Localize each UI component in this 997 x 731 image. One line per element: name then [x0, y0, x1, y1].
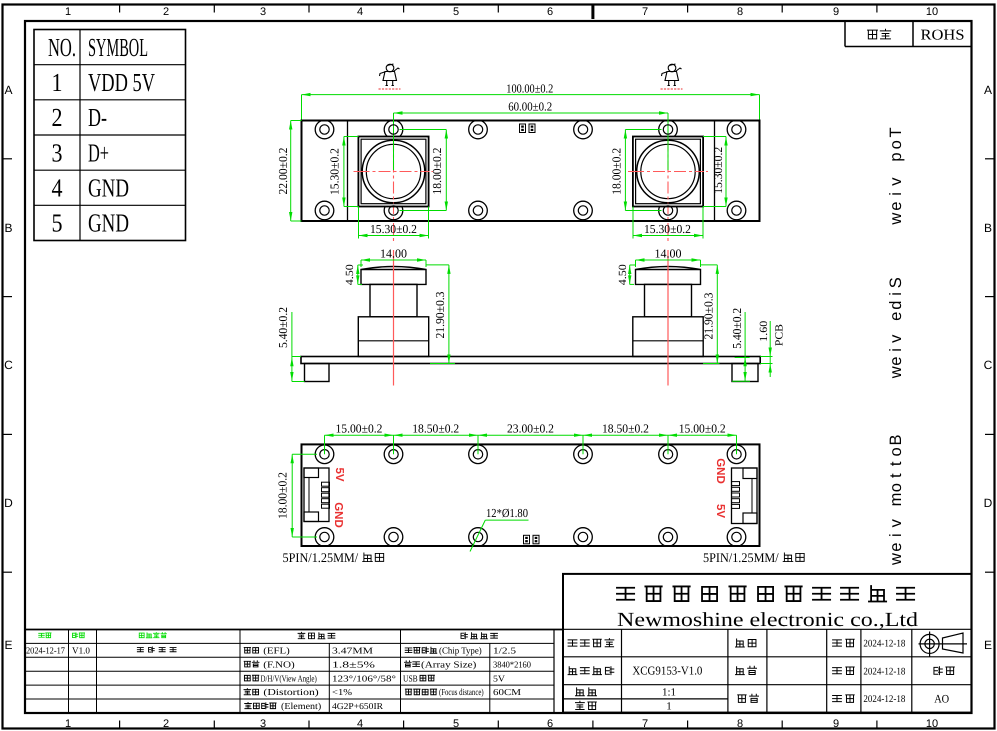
svg-text:18.00±0.2: 18.00±0.2: [276, 472, 290, 519]
svg-text:m: m: [887, 493, 905, 507]
svg-text:5.40±0.2: 5.40±0.2: [730, 308, 744, 349]
svg-text:14.00: 14.00: [655, 246, 682, 260]
svg-text:GND: GND: [88, 209, 129, 238]
svg-text:i: i: [887, 192, 905, 196]
svg-text:15.00±0.2: 15.00±0.2: [336, 422, 383, 436]
svg-text:e: e: [887, 202, 905, 211]
svg-text:5V: 5V: [333, 467, 345, 481]
svg-text:3.47MM: 3.47MM: [332, 646, 373, 656]
svg-text:5: 5: [453, 718, 459, 730]
svg-text:XCG9153-V1.0: XCG9153-V1.0: [632, 664, 702, 678]
svg-text:1/2.5: 1/2.5: [493, 646, 517, 656]
svg-text:10: 10: [926, 718, 938, 730]
svg-text:A: A: [4, 83, 12, 97]
svg-text:7: 7: [642, 6, 648, 18]
svg-text:8: 8: [737, 718, 743, 730]
svg-text:4.50: 4.50: [344, 264, 356, 286]
svg-text:v: v: [887, 177, 905, 186]
svg-text:w: w: [887, 553, 905, 566]
svg-text:D: D: [984, 496, 993, 510]
svg-text:(Focus distance): (Focus distance): [439, 687, 484, 697]
svg-text:i: i: [887, 533, 905, 537]
svg-text:3: 3: [52, 138, 63, 167]
svg-text:S: S: [887, 277, 905, 288]
svg-text:VDD 5V: VDD 5V: [88, 68, 155, 97]
svg-text:e: e: [887, 543, 905, 552]
svg-text:15.30±0.2: 15.30±0.2: [328, 148, 342, 195]
svg-text:o: o: [887, 447, 905, 456]
svg-text:(Chip Type): (Chip Type): [439, 646, 482, 656]
svg-text:60.00±0.2: 60.00±0.2: [508, 99, 552, 113]
svg-text:2024-12-17: 2024-12-17: [26, 646, 65, 656]
svg-text:6: 6: [547, 718, 553, 730]
svg-text:15.30±0.2: 15.30±0.2: [644, 222, 691, 236]
svg-text:USB: USB: [403, 673, 418, 683]
svg-text:D/H/V(View Angle): D/H/V(View Angle): [261, 673, 317, 683]
svg-text:E: E: [984, 638, 992, 652]
svg-text:123°/106°/58°: 123°/106°/58°: [332, 673, 396, 683]
svg-text:o: o: [887, 483, 905, 492]
svg-text:T: T: [887, 127, 905, 137]
svg-text:60CM: 60CM: [493, 687, 521, 697]
svg-text:t: t: [887, 473, 905, 478]
svg-text:1: 1: [65, 6, 71, 18]
svg-text:v: v: [887, 518, 905, 527]
svg-text:100.00±0.2: 100.00±0.2: [506, 82, 553, 96]
svg-text:i: i: [887, 292, 905, 296]
svg-text:PCB: PCB: [774, 324, 786, 346]
svg-text:18.00±0.2: 18.00±0.2: [430, 148, 444, 195]
svg-text:w: w: [887, 213, 905, 226]
svg-text:3840*2160: 3840*2160: [493, 659, 531, 669]
svg-text:w: w: [887, 366, 905, 379]
svg-text:GND: GND: [714, 458, 726, 484]
svg-text:23.00±0.2: 23.00±0.2: [507, 422, 554, 436]
svg-text:7: 7: [642, 718, 648, 730]
svg-text:p: p: [887, 152, 905, 161]
svg-text:B: B: [4, 221, 12, 235]
svg-text:18.50±0.2: 18.50±0.2: [412, 422, 459, 436]
svg-text:9: 9: [833, 6, 839, 18]
svg-text:2024-12-18: 2024-12-18: [863, 666, 905, 677]
svg-text:1: 1: [666, 701, 672, 713]
svg-text:4: 4: [357, 6, 363, 18]
svg-text:22.00±0.2: 22.00±0.2: [276, 148, 290, 195]
svg-text:2024-12-18: 2024-12-18: [863, 639, 905, 650]
svg-text:5: 5: [52, 209, 63, 238]
svg-text:2: 2: [52, 103, 63, 132]
svg-text:10: 10: [926, 6, 938, 18]
svg-text:9: 9: [833, 718, 839, 730]
svg-text:5V: 5V: [493, 673, 506, 683]
svg-text:12*Ø1.80: 12*Ø1.80: [486, 506, 528, 520]
svg-text:t: t: [887, 461, 905, 466]
svg-text:2: 2: [163, 6, 169, 18]
svg-text:1: 1: [52, 68, 63, 97]
svg-text:3: 3: [260, 718, 266, 730]
svg-text:1: 1: [65, 718, 71, 730]
svg-text:(EFL): (EFL): [261, 646, 290, 656]
svg-text:C: C: [984, 358, 993, 372]
svg-text:2: 2: [163, 718, 169, 730]
svg-text:1.60: 1.60: [758, 320, 770, 342]
svg-text:B: B: [984, 221, 992, 235]
svg-text:3: 3: [260, 6, 266, 18]
svg-text:18.00±0.2: 18.00±0.2: [609, 148, 623, 195]
svg-text:1:1: 1:1: [662, 687, 676, 699]
svg-text:e: e: [887, 357, 905, 366]
svg-text:(F.NO): (F.NO): [261, 659, 295, 669]
svg-text:d: d: [887, 301, 905, 310]
svg-text:21.90±0.3: 21.90±0.3: [433, 292, 447, 339]
svg-text:D: D: [4, 496, 13, 510]
svg-text:C: C: [4, 358, 13, 372]
svg-text:(Array Size): (Array Size): [421, 659, 476, 669]
svg-text:1.8±5%: 1.8±5%: [332, 659, 376, 669]
svg-text:v: v: [887, 334, 905, 343]
svg-text:6: 6: [547, 6, 553, 18]
svg-text:5PIN/1.25MM/: 5PIN/1.25MM/: [283, 550, 359, 565]
svg-text:5PIN/1.25MM/: 5PIN/1.25MM/: [703, 550, 779, 565]
svg-text:18.50±0.2: 18.50±0.2: [602, 422, 649, 436]
svg-text:(Distortion): (Distortion): [261, 687, 319, 697]
svg-text:ROHS: ROHS: [921, 28, 965, 44]
svg-text:14.00: 14.00: [380, 246, 407, 260]
svg-text:D-: D-: [88, 103, 107, 132]
svg-text:4G2P+650IR: 4G2P+650IR: [332, 701, 383, 711]
svg-text:AO: AO: [934, 693, 949, 705]
svg-text:5: 5: [453, 6, 459, 18]
svg-text:B: B: [887, 434, 905, 445]
svg-text:5V: 5V: [714, 504, 726, 518]
svg-text:21.90±0.3: 21.90±0.3: [702, 293, 716, 340]
svg-text:A: A: [984, 83, 992, 97]
svg-text:(Element): (Element): [279, 701, 322, 711]
svg-text:4: 4: [357, 718, 363, 730]
svg-text:5.40±0.2: 5.40±0.2: [276, 307, 290, 348]
svg-text:o: o: [887, 140, 905, 149]
svg-text:D+: D+: [88, 138, 109, 167]
svg-text:V1.0: V1.0: [72, 646, 90, 656]
svg-text:<1%: <1%: [332, 687, 353, 697]
svg-text:4: 4: [52, 174, 63, 203]
svg-text:Newmoshine electronic co.,Ltd: Newmoshine electronic co.,Ltd: [617, 609, 918, 631]
svg-text:e: e: [887, 312, 905, 321]
svg-text:15.30±0.2: 15.30±0.2: [370, 222, 417, 236]
svg-text:GND: GND: [88, 174, 129, 203]
svg-text:i: i: [887, 348, 905, 352]
svg-text:NO.: NO.: [48, 33, 76, 62]
svg-text:4.50: 4.50: [617, 264, 629, 286]
svg-text:GND: GND: [332, 502, 344, 528]
svg-text:SYMBOL: SYMBOL: [88, 33, 148, 62]
svg-text:15.00±0.2: 15.00±0.2: [679, 422, 726, 436]
svg-text:2024-12-18: 2024-12-18: [863, 694, 905, 705]
svg-text:8: 8: [737, 6, 743, 18]
svg-text:15.30±0.2: 15.30±0.2: [711, 147, 725, 194]
svg-text:E: E: [4, 638, 12, 652]
